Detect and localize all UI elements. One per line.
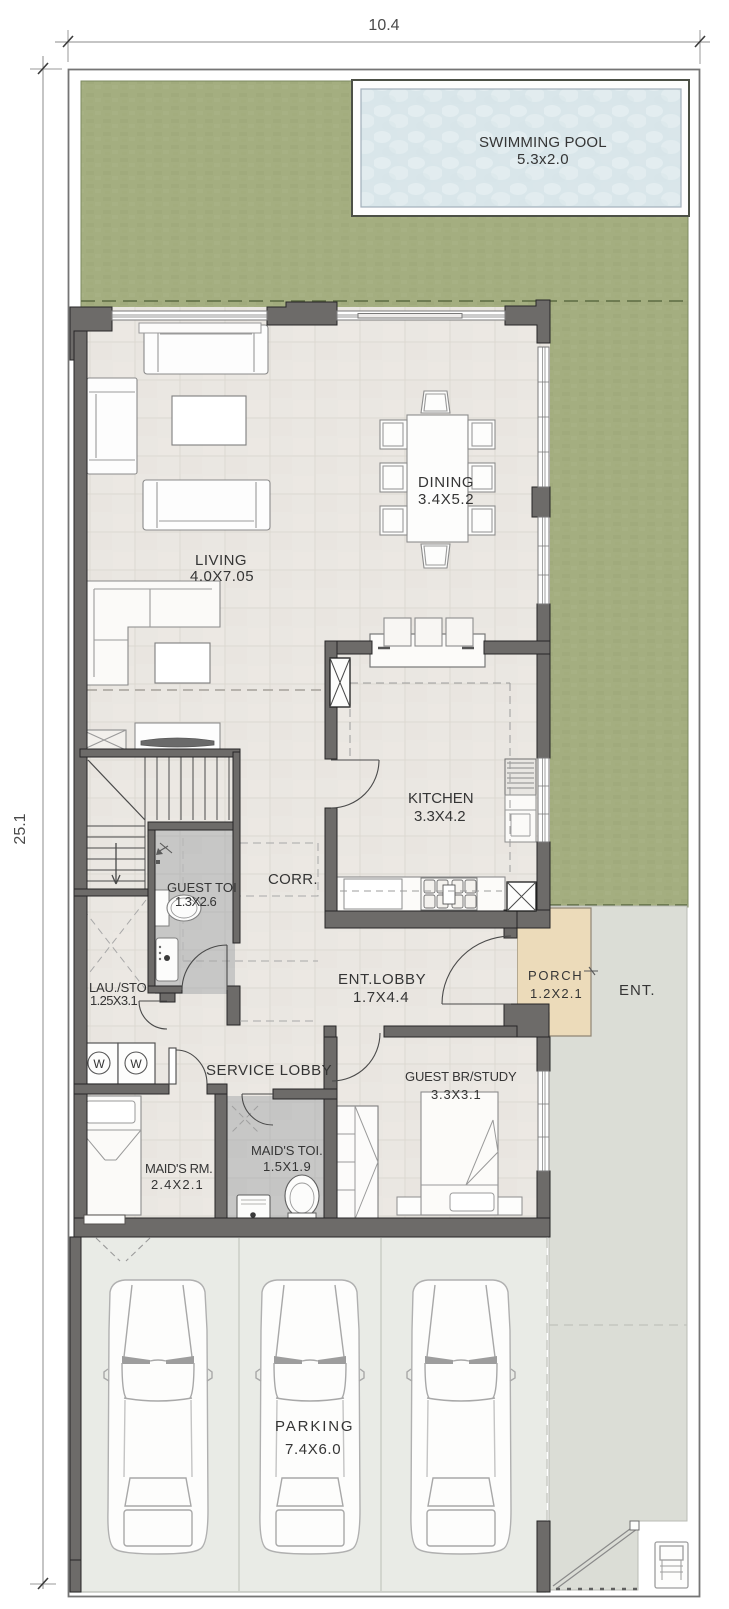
svg-text:ENT.: ENT.: [619, 982, 655, 999]
svg-text:KITCHEN: KITCHEN: [408, 790, 474, 807]
svg-text:W: W: [93, 1057, 105, 1071]
svg-text:SERVICE LOBBY: SERVICE LOBBY: [206, 1062, 332, 1079]
svg-text:1.2X2.1: 1.2X2.1: [530, 986, 582, 1001]
svg-text:1.7X4.4: 1.7X4.4: [353, 989, 409, 1006]
svg-text:MAID'S TOI.: MAID'S TOI.: [251, 1143, 323, 1158]
svg-text:GUEST BR/STUDY: GUEST BR/STUDY: [405, 1069, 517, 1084]
svg-text:7.4X6.0: 7.4X6.0: [285, 1441, 341, 1458]
svg-text:25.1: 25.1: [12, 813, 29, 844]
svg-text:SWIMMING POOL: SWIMMING POOL: [479, 134, 607, 151]
svg-text:1.5X1.9: 1.5X1.9: [263, 1159, 311, 1174]
svg-text:3.3X3.1: 3.3X3.1: [431, 1087, 481, 1102]
svg-text:GUEST TOI: GUEST TOI: [167, 880, 237, 895]
svg-text:5.3x2.0: 5.3x2.0: [517, 151, 569, 168]
svg-text:PORCH: PORCH: [528, 968, 582, 983]
svg-text:MAID'S RM.: MAID'S RM.: [145, 1161, 213, 1176]
svg-text:CORR.: CORR.: [268, 871, 318, 888]
svg-text:1.25X3.1: 1.25X3.1: [90, 993, 138, 1008]
svg-text:ENT.LOBBY: ENT.LOBBY: [338, 971, 426, 988]
svg-text:PARKING: PARKING: [275, 1418, 353, 1435]
svg-text:W: W: [130, 1057, 142, 1071]
svg-text:4.0X7.05: 4.0X7.05: [190, 568, 254, 585]
svg-text:LIVING: LIVING: [195, 552, 247, 569]
svg-text:2.4X2.1: 2.4X2.1: [151, 1177, 203, 1192]
svg-text:DINING: DINING: [418, 474, 474, 491]
svg-text:3.3X4.2: 3.3X4.2: [414, 808, 466, 825]
svg-text:10.4: 10.4: [368, 17, 399, 34]
svg-text:3.4X5.2: 3.4X5.2: [418, 491, 474, 508]
svg-text:1.3X2.6: 1.3X2.6: [175, 894, 217, 909]
